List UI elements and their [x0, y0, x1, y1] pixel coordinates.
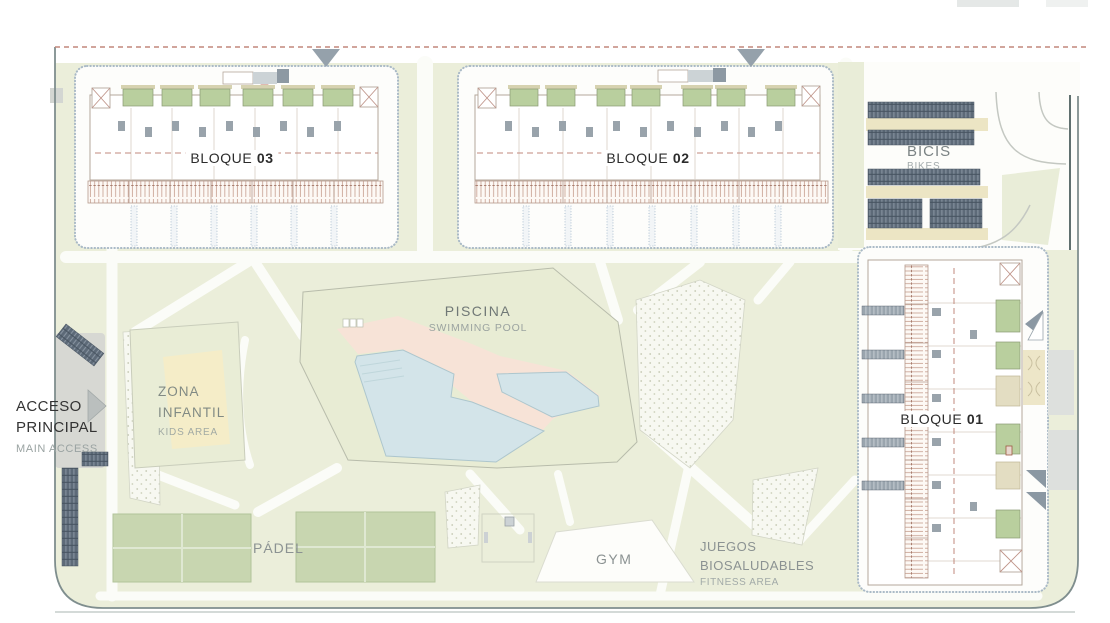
pool-area	[300, 268, 637, 468]
bloque-03-body	[90, 95, 378, 180]
pergola-strip	[1023, 350, 1045, 405]
bloque-01-label: BLOQUE 01	[895, 411, 988, 427]
bloque-02-body	[475, 95, 820, 180]
curb-marker	[50, 88, 63, 103]
top-margin	[55, 47, 1080, 63]
bloque-03-parking	[88, 181, 383, 203]
bloque-02-parking	[475, 181, 828, 203]
fitness-area-label: JUEGOS BIOSALUDABLES FITNESS AREA	[700, 537, 814, 588]
access-rack-v	[62, 468, 78, 566]
gym-label: GYM	[596, 551, 632, 567]
bloque-01-utility	[1006, 446, 1012, 455]
main-access-label: ACCESO PRINCIPAL MAIN ACCESS	[16, 396, 98, 455]
bloque-03-label: BLOQUE 03	[185, 150, 278, 166]
bikes-zone	[838, 62, 1080, 250]
bloque-02-label: BLOQUE 02	[601, 150, 694, 166]
kids-area-label: ZONA INFANTIL KIDS AREA	[158, 381, 225, 438]
offplan-fragment	[957, 0, 1088, 7]
bikes-label: BICIS BIKES	[907, 143, 951, 172]
piscina-label: PISCINA SWIMMING POOL	[429, 303, 528, 334]
side-road-2	[1048, 430, 1078, 490]
pool-ladder-steps	[343, 319, 363, 327]
site-plan-drawing	[0, 0, 1110, 623]
side-road-1	[1048, 350, 1074, 415]
padel-label: PÁDEL	[253, 540, 304, 556]
site-plan: BLOQUE 03 BLOQUE 02 BLOQUE 01 PISCINA SW…	[0, 0, 1110, 623]
